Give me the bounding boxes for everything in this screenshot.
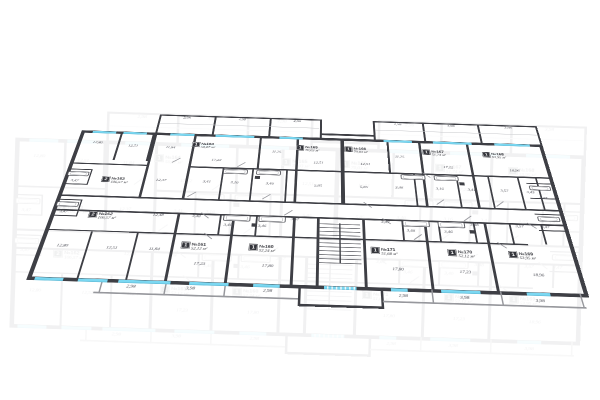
balcony-wall — [212, 116, 217, 135]
room-dim-label: 3,98 — [185, 286, 195, 291]
apartment-area: 70,03 м² — [305, 149, 319, 152]
room-count-badge: 1 — [297, 145, 304, 150]
window — [279, 137, 303, 140]
door-swing-icon — [284, 210, 293, 216]
vent-shaft-icon — [251, 223, 257, 227]
room-dim-label: 3,98 — [447, 124, 455, 127]
room-dim-label: 12,80 — [92, 141, 103, 145]
apartment-card-161[interactable]: 1 №16152,12 м² — [181, 242, 208, 251]
room-dim-label: 17,80 — [383, 313, 395, 318]
room-dim-label: 2,98 — [294, 120, 301, 123]
room-count-badge: 1 — [482, 152, 490, 157]
room-dim-label: 3,16 — [230, 180, 238, 184]
vent-shaft-icon — [469, 230, 475, 234]
room-dim-label: 5,85 — [314, 184, 322, 188]
wall — [113, 134, 123, 160]
bathtub-icon — [223, 169, 248, 174]
room-dim-label: 12,48 — [152, 213, 164, 217]
balcony-wall — [422, 123, 427, 143]
room-dim-label: 3,46 — [266, 182, 274, 186]
apartment-card-169[interactable]: 1 №16953,95 м² — [508, 251, 536, 260]
door-swing-icon — [172, 158, 181, 163]
room-count-badge: 1 — [423, 150, 431, 155]
bathtub-icon — [223, 215, 251, 222]
door-swing-icon — [464, 216, 472, 222]
apartment-area: 52,24 м² — [259, 249, 276, 253]
room-dim-label: 3,47 — [59, 209, 69, 213]
wall — [257, 138, 262, 169]
bathtub-icon — [434, 176, 459, 182]
wall — [9, 138, 19, 328]
room-dim-label: 3,46 — [258, 224, 267, 228]
door-swing-icon — [436, 199, 444, 204]
balcony-rail — [370, 349, 574, 357]
room-dim-label: 3,57 — [500, 189, 509, 193]
window — [61, 326, 91, 330]
window — [92, 131, 116, 134]
room-dim-label: 3,98 — [448, 343, 457, 348]
room-dim-label: 17,23 — [453, 316, 465, 321]
window — [170, 133, 195, 136]
room-dim-label: 18,96 — [529, 319, 541, 324]
window — [77, 278, 107, 282]
room-count-badge: 1 — [345, 147, 352, 152]
apartment-area: 106,57 м² — [110, 180, 128, 184]
entrance-wall — [285, 352, 371, 357]
wall — [249, 168, 254, 201]
wall — [164, 214, 180, 281]
room-dim-label: 2,98 — [398, 293, 408, 298]
room-dim-label: 12,51 — [360, 162, 370, 166]
room-count-badge: 1 — [181, 242, 190, 248]
room-dim-label: 3,98 — [504, 126, 512, 129]
window — [34, 277, 64, 281]
entrance-door — [311, 334, 344, 338]
wall — [320, 133, 376, 137]
balcony-rail — [376, 130, 537, 136]
apartment-area: 51,74 м² — [432, 153, 447, 156]
room-dim-label: 12,51 — [106, 245, 118, 250]
bathtub-icon — [55, 201, 79, 207]
room-dim-label: 17,22 — [443, 165, 454, 169]
wall — [487, 175, 496, 208]
bathtub-icon — [256, 170, 281, 175]
room-dim-label: 12,80 — [56, 243, 69, 248]
door-swing-icon — [237, 162, 246, 167]
window — [430, 338, 470, 343]
room-dim-label: 17,80 — [392, 267, 404, 272]
bathtub-icon — [537, 216, 561, 222]
room-dim-label: 2,98 — [263, 288, 273, 293]
wall — [517, 176, 527, 209]
bathtub-icon — [258, 216, 286, 223]
room-dim-label: 2,98 — [386, 341, 395, 346]
room-dim-label: 12,51 — [313, 161, 323, 165]
room-dim-label: 17,23 — [193, 261, 205, 266]
apartment-area: 51,68 м² — [381, 252, 397, 256]
door-swing-icon — [187, 192, 196, 197]
balcony-wall — [268, 118, 272, 137]
apartment-card-167[interactable]: 1 №16751,74 м² — [423, 150, 447, 157]
room-dim-label: 3,16 — [435, 187, 443, 191]
window — [239, 332, 266, 336]
apartment-area: 53,95 м² — [492, 156, 507, 160]
room-dim-label: 2,98 — [112, 332, 121, 337]
room-dim-label: 17,80 — [247, 310, 259, 315]
room-dim-label: 3,48 — [470, 223, 479, 227]
room-dim-label: 3,67 — [291, 217, 300, 221]
wall — [77, 232, 93, 278]
wall — [9, 324, 580, 346]
apartment-area: 52,12 м² — [191, 246, 208, 250]
apartment-card-165[interactable]: 1 №16570,03 м² — [296, 145, 319, 152]
bathtub-icon — [402, 220, 430, 227]
bath-wall — [62, 183, 88, 185]
room-dim-label: 5,85 — [360, 185, 368, 189]
corridor-wall — [57, 194, 562, 211]
room-dim-label: 3,46 — [223, 223, 232, 227]
window — [433, 142, 472, 145]
room-dim-label: 3,47 — [541, 225, 550, 229]
apartment-card-170[interactable]: 1 №17052,12 м² — [448, 250, 475, 259]
apartment-card-171[interactable]: 1 №17151,68 м² — [371, 247, 398, 256]
room-dim-label: 3,46 — [395, 186, 403, 190]
room-dim-label: 2,98 — [126, 284, 136, 289]
room-count-badge: 1 — [249, 244, 258, 250]
window — [441, 290, 481, 294]
room-count-badge: 1 — [508, 251, 517, 257]
room-dim-label: 2,98 — [183, 116, 191, 119]
room-dim-label: 3,47 — [539, 196, 548, 200]
wall — [217, 216, 222, 235]
room-dim-label: 18,96 — [532, 273, 545, 278]
window — [17, 325, 46, 329]
room-dim-label: 2,98 — [249, 336, 258, 341]
room-count-badge: 2 — [88, 211, 97, 217]
room-dim-label: 11,25 — [395, 155, 405, 159]
stair-divider — [339, 223, 341, 263]
apartment-card-168[interactable]: 1 №16853,95 м² — [482, 152, 506, 159]
balcony-wall — [155, 114, 162, 133]
door-swing-icon — [262, 194, 271, 199]
vent-shaft-icon — [255, 176, 260, 179]
wall — [423, 222, 434, 289]
bath-wall — [56, 199, 82, 201]
wall — [484, 224, 500, 291]
room-count-badge: 1 — [448, 250, 457, 256]
room-dim-label: 12,37 — [156, 178, 167, 182]
apartment-card-163[interactable]: 2 №163106,57 м² — [101, 176, 129, 184]
floor-plan: 2,98 3,98 2,98 2,98 3,98 3,98 12,80 12,5… — [18, 111, 593, 309]
balcony-wall — [477, 124, 483, 144]
wall — [138, 135, 157, 198]
room-dim-label: 3,98 — [535, 298, 545, 303]
vent-shaft-icon — [459, 182, 465, 185]
window — [391, 288, 408, 292]
bathtub-icon — [437, 221, 465, 228]
room-dim-label: 3,46 — [406, 228, 415, 232]
window — [123, 132, 147, 135]
room-dim-label: 17,22 — [211, 158, 222, 162]
balcony-wall — [320, 119, 322, 138]
room-dim-label: 3,57 — [515, 224, 524, 228]
apartment-area: 106,57 м² — [97, 216, 116, 220]
apartment-area: 53,95 м² — [519, 256, 536, 261]
apartment-card-166[interactable]: 1 №16670,03 м² — [345, 147, 368, 154]
room-count-badge: 1 — [371, 247, 379, 253]
wall — [535, 177, 546, 210]
bath-wall — [534, 214, 560, 216]
room-count-badge: 2 — [101, 176, 110, 181]
room-dim-label: 3,98 — [238, 118, 246, 121]
room-dim-label: 3,98 — [524, 346, 533, 351]
stairwell-wall — [362, 220, 368, 287]
window — [102, 327, 155, 332]
room-dim-label: 3,41 — [203, 180, 212, 184]
room-dim-label: 17,80 — [262, 263, 274, 268]
room-dim-label: 11,25 — [272, 150, 282, 154]
window — [526, 292, 550, 296]
room-dim-label: 2,98 — [394, 123, 402, 126]
perspective-wrapper: 2,98 3,98 2,98 2,98 3,98 3,98 12,80 12,5… — [18, 6, 600, 309]
bathtub-icon — [67, 171, 90, 176]
bathtub-icon — [400, 174, 425, 180]
window — [215, 135, 254, 138]
entrance-door — [324, 286, 357, 290]
wall — [45, 229, 130, 233]
bath-wall — [67, 168, 92, 170]
wall — [125, 233, 139, 279]
apartment-area: 50,67 м² — [200, 146, 215, 149]
apartment-area: 52,12 м² — [458, 254, 475, 259]
floor-plan-scene: 2,98 3,98 2,98 2,98 3,98 3,98 12,80 12,5… — [18, 6, 600, 309]
wall — [387, 142, 392, 173]
window — [379, 336, 396, 340]
door-swing-icon — [414, 234, 422, 240]
bath-wall — [50, 215, 77, 217]
wall — [290, 218, 296, 285]
door-swing-icon — [496, 201, 503, 206]
room-dim-label: 3,67 — [381, 220, 390, 224]
room-dim-label: 11,84 — [148, 247, 160, 252]
balcony-wall — [535, 126, 543, 146]
apartment-card-162[interactable]: 2 №162106,57 м² — [88, 211, 118, 220]
room-dim-label: 11,84 — [165, 146, 175, 150]
room-dim-label: 3,48 — [192, 214, 201, 218]
balcony-wall — [373, 121, 376, 140]
room-dim-label: 3,46 — [444, 230, 453, 234]
room-dim-label: 17,23 — [176, 308, 188, 313]
room-count-badge: 1 — [192, 142, 200, 147]
wall — [70, 162, 147, 166]
room-dim-label: 3,98 — [460, 295, 470, 300]
room-dim-label: 3,47 — [70, 178, 79, 182]
stairwell-wall — [316, 219, 320, 286]
room-dim-label: 18,96 — [509, 169, 520, 173]
floor-plan-viewport: 2,98 3,98 2,98 2,98 3,98 3,98 12,80 12,5… — [0, 0, 600, 400]
stair-step — [306, 308, 351, 310]
apartment-card-164[interactable]: 1 №16450,67 м² — [192, 142, 216, 149]
room-dim-label: 3,41 — [467, 188, 476, 192]
room-dim-label: 12,51 — [128, 144, 139, 148]
room-dim-label: 3,43 — [526, 190, 535, 194]
apartment-area: 70,03 м² — [354, 150, 368, 153]
corridor-wall — [52, 209, 567, 227]
apartment-card-160[interactable]: 1 №16052,24 м² — [249, 244, 276, 253]
balcony-rail — [160, 123, 319, 129]
window — [494, 143, 530, 146]
room-dim-label: 3,98 — [172, 334, 181, 339]
wall — [284, 169, 288, 202]
room-dim-label: 17,23 — [459, 270, 471, 275]
wall — [509, 225, 515, 244]
